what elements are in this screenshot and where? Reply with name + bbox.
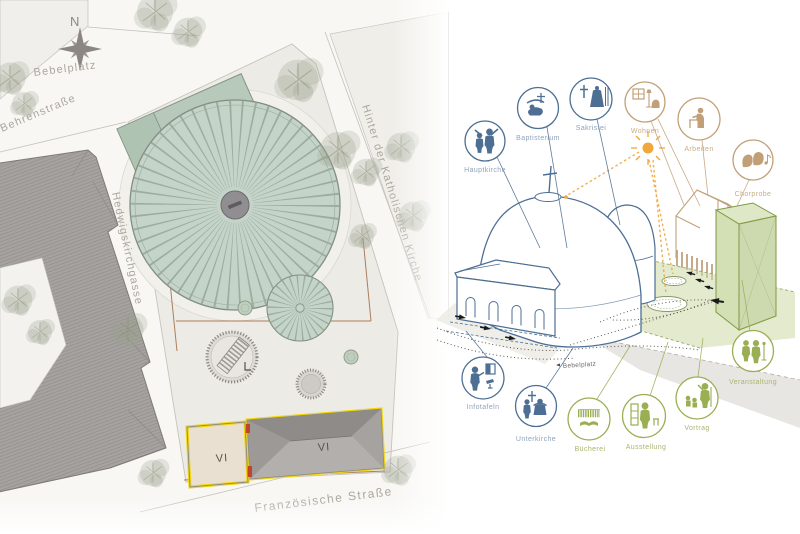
icon-arbeiten: Arbeiten bbox=[678, 98, 720, 153]
icon-label-hauptkirche: Hauptkirche bbox=[464, 167, 506, 174]
icon-unterkirche: Unterkirche bbox=[516, 386, 557, 444]
icon-label-sakristei: Sakristei bbox=[576, 125, 606, 132]
axon-bebelplatz-tag: Bebelplatz bbox=[556, 361, 596, 370]
icon-label-chorprobe: Chorprobe bbox=[735, 191, 772, 198]
skylight-disc bbox=[662, 277, 686, 286]
icon-label-unterkirche: Unterkirche bbox=[516, 436, 556, 443]
icon-chorprobe: Chorprobe bbox=[733, 140, 773, 198]
icon-hauptkirche: Hauptkirche bbox=[464, 121, 506, 174]
small-drum-plan bbox=[297, 370, 325, 398]
icon-ausstellung: Ausstellung bbox=[623, 395, 667, 452]
icon-vortrag: Vortrag bbox=[676, 377, 718, 432]
building-vi-right bbox=[247, 409, 384, 479]
plan-fade-right bbox=[392, 0, 448, 534]
parcel-mark bbox=[246, 424, 250, 433]
dome-cross-icon bbox=[543, 166, 557, 193]
lantern-oculus bbox=[535, 193, 561, 202]
site-plan: VI VI N Beb bbox=[0, 0, 448, 534]
ray-endpoint bbox=[564, 195, 568, 199]
icon-label-vortrag: Vortrag bbox=[684, 425, 709, 432]
floors-label-left: VI bbox=[215, 452, 228, 465]
icon-wohnen: Wohnen bbox=[625, 82, 665, 135]
icon-label-infotafeln: Infotafeln bbox=[467, 404, 500, 411]
icon-label-baptisterium: Baptisterium bbox=[516, 135, 560, 142]
baptisterium-dome-plan bbox=[267, 275, 333, 341]
icon-infotafeln: Infotafeln bbox=[462, 357, 504, 411]
parcel-mark bbox=[248, 466, 252, 477]
sun-icon bbox=[631, 131, 665, 165]
stair-drum-plan bbox=[207, 332, 257, 382]
architectural-sheet: VI VI N Beb bbox=[0, 0, 800, 534]
axon-bebelplatz-label: Bebelplatz bbox=[563, 361, 597, 370]
icon-sakristei: Sakristei bbox=[570, 78, 612, 132]
event-box bbox=[716, 203, 776, 330]
icon-label-wohnen: Wohnen bbox=[631, 128, 659, 135]
concept-diagram: Bebelplatz Hauptki bbox=[436, 78, 800, 453]
icon-label-ausstellung: Ausstellung bbox=[626, 444, 667, 451]
plan-fade-bottom bbox=[0, 498, 448, 534]
icon-label-buecherei: Bücherei bbox=[575, 446, 606, 453]
icon-buecherei: Bücherei bbox=[568, 398, 610, 453]
north-letter: N bbox=[70, 14, 80, 29]
icon-label-veranstaltung: Veranstaltung bbox=[729, 379, 777, 386]
floors-label-right: VI bbox=[317, 441, 330, 454]
icon-baptisterium: Baptisterium bbox=[516, 88, 560, 143]
icon-label-arbeiten: Arbeiten bbox=[684, 146, 713, 153]
